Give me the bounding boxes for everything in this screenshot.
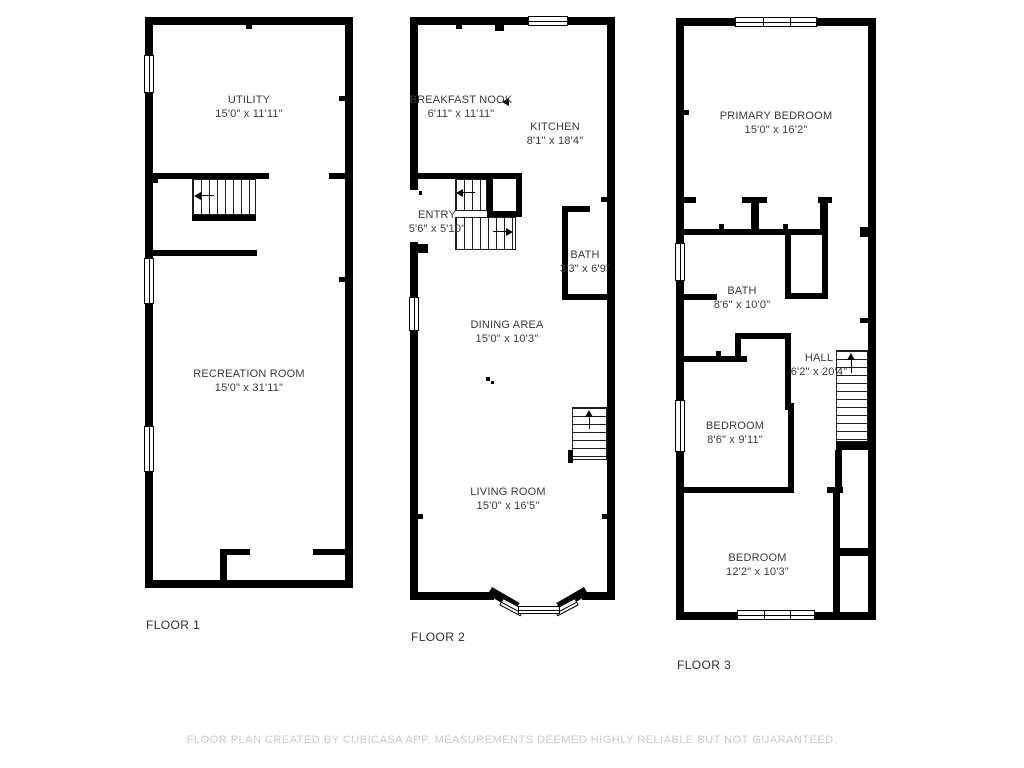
door-tick <box>153 179 158 183</box>
room-name: BEDROOM <box>685 551 830 565</box>
window-pane-line <box>736 22 816 23</box>
wall <box>313 549 345 555</box>
stair-arrow-stem <box>589 417 590 429</box>
stair-arrow-right-icon <box>506 228 513 236</box>
room-name: RECREATION ROOM <box>145 367 353 381</box>
room-name: BATH <box>707 284 777 298</box>
room-label-bath: BATH 8'6" x 10'0" <box>707 284 777 312</box>
wall <box>785 235 791 299</box>
room-name: BEDROOM <box>678 419 792 433</box>
wall <box>836 442 868 450</box>
wall <box>684 356 747 362</box>
window-divider <box>763 18 764 26</box>
room-dims: 6'11" x 11'11" <box>405 107 517 121</box>
room-label-dining-area: DINING AREA 15'0" x 10'3" <box>451 318 563 346</box>
door-tick <box>456 25 462 29</box>
wall <box>568 450 573 463</box>
wall <box>684 197 696 203</box>
wall <box>820 197 828 235</box>
stair-arrow-stem <box>463 192 475 193</box>
bay-window <box>518 606 560 614</box>
room-dims: 15'0" x 16'5" <box>452 499 564 513</box>
wall <box>751 197 759 229</box>
floor-3-label: FLOOR 3 <box>677 658 731 672</box>
stair-arrow-left-icon <box>456 189 463 197</box>
wall <box>822 235 828 299</box>
room-name: DINING AREA <box>451 318 563 332</box>
window-pane-line <box>680 244 681 280</box>
door-tick <box>601 197 607 202</box>
door-tick <box>339 277 345 282</box>
room-label-bedroom-1: BEDROOM 8'6" x 9'11" <box>678 419 792 447</box>
wall <box>192 215 256 221</box>
room-label-kitchen: KITCHEN 8'1" x 18'4" <box>499 120 611 148</box>
wall <box>220 549 250 555</box>
wall <box>495 25 504 31</box>
window <box>735 17 817 27</box>
room-dims: 3'3" x 6'9" <box>554 262 616 276</box>
room-dims: 15'0" x 11'11" <box>145 107 353 121</box>
room-dims: 8'6" x 9'11" <box>678 433 792 447</box>
room-dims: 8'1" x 18'4" <box>499 134 611 148</box>
room-label-bath: BATH 3'3" x 6'9" <box>554 248 616 276</box>
floor-plan-canvas: UTILITY 15'0" x 11'11" RECREATION ROOM 1… <box>0 0 1024 768</box>
floor-2-label: FLOOR 2 <box>411 630 465 644</box>
stair-arrow-up-icon <box>585 410 593 417</box>
room-label-hall: HALL 6'2" x 20'4" <box>787 351 851 379</box>
window <box>144 426 154 472</box>
door-swing-mark <box>491 381 494 384</box>
wall <box>835 450 842 493</box>
wall <box>151 250 257 256</box>
window <box>409 297 419 331</box>
room-label-utility: UTILITY 15'0" x 11'11" <box>145 93 353 121</box>
wall <box>788 403 794 493</box>
wall <box>840 548 868 556</box>
room-dims: 12'2" x 10'3" <box>685 565 830 579</box>
stair-arrow-stem <box>851 360 852 373</box>
wall <box>562 206 590 212</box>
stair-arrow-stem <box>493 231 506 232</box>
wall <box>562 294 607 300</box>
window-pane-line <box>149 259 150 303</box>
room-dims: 15'0" x 10'3" <box>451 332 563 346</box>
room-dims: 6'2" x 20'4" <box>787 365 851 379</box>
window <box>144 258 154 304</box>
wall <box>737 333 791 339</box>
window-divider <box>790 18 791 26</box>
wall <box>684 487 788 493</box>
door-tick <box>783 224 788 229</box>
window <box>737 610 815 620</box>
door-tick <box>860 318 868 323</box>
stair-arrow-left-icon <box>194 192 201 200</box>
room-label-breakfast-nook: BREAKFAST NOOK 6'11" x 11'11" <box>405 93 517 121</box>
wall <box>785 293 828 299</box>
wall <box>860 227 868 237</box>
window-pane-line <box>519 610 559 611</box>
window-pane-line <box>149 427 150 471</box>
door-tick <box>716 351 721 356</box>
room-name: LIVING ROOM <box>452 485 564 499</box>
window <box>675 243 685 281</box>
stair-arrow-stem <box>201 195 214 196</box>
window <box>144 55 154 93</box>
room-dims: 5'6" x 5'10" <box>404 222 470 236</box>
wall <box>684 229 820 235</box>
window-pane-line <box>149 56 150 92</box>
disclaimer-text: FLOOR PLAN CREATED BY CUBICASA APP. MEAS… <box>0 734 1024 746</box>
window-pane-line <box>529 21 567 22</box>
wall <box>418 244 428 253</box>
room-label-recreation-room: RECREATION ROOM 15'0" x 31'11" <box>145 367 353 395</box>
window-divider <box>764 611 765 619</box>
room-dims: 8'6" x 10'0" <box>707 298 777 312</box>
room-name: HALL <box>787 351 851 365</box>
room-name: ENTRY <box>404 208 470 222</box>
room-dims: 15'0" x 16'2" <box>700 123 852 137</box>
room-label-living-room: LIVING ROOM 15'0" x 16'5" <box>452 485 564 513</box>
room-name: KITCHEN <box>499 120 611 134</box>
door-tick <box>719 224 724 229</box>
room-label-bedroom-2: BEDROOM 12'2" x 10'3" <box>685 551 830 579</box>
room-name: PRIMARY BEDROOM <box>700 109 852 123</box>
window-divider <box>790 611 791 619</box>
room-name: BATH <box>554 248 616 262</box>
door-tick <box>418 514 423 519</box>
room-label-primary-bedroom: PRIMARY BEDROOM 15'0" x 16'2" <box>700 109 852 137</box>
room-name: UTILITY <box>145 93 353 107</box>
wall <box>329 173 347 179</box>
door-tick <box>246 25 252 29</box>
room-dims: 15'0" x 31'11" <box>145 381 353 395</box>
floor-1-label: FLOOR 1 <box>146 618 200 632</box>
door-tick <box>684 110 689 115</box>
room-name: BREAKFAST NOOK <box>405 93 517 107</box>
door-tick <box>602 514 607 519</box>
window-pane-line <box>738 615 814 616</box>
window-pane-line <box>414 298 415 330</box>
wall <box>833 493 840 612</box>
door-swing-mark <box>486 377 490 381</box>
window <box>528 16 568 26</box>
staircase <box>192 179 256 215</box>
room-label-entry: ENTRY 5'6" x 5'10" <box>404 208 470 236</box>
